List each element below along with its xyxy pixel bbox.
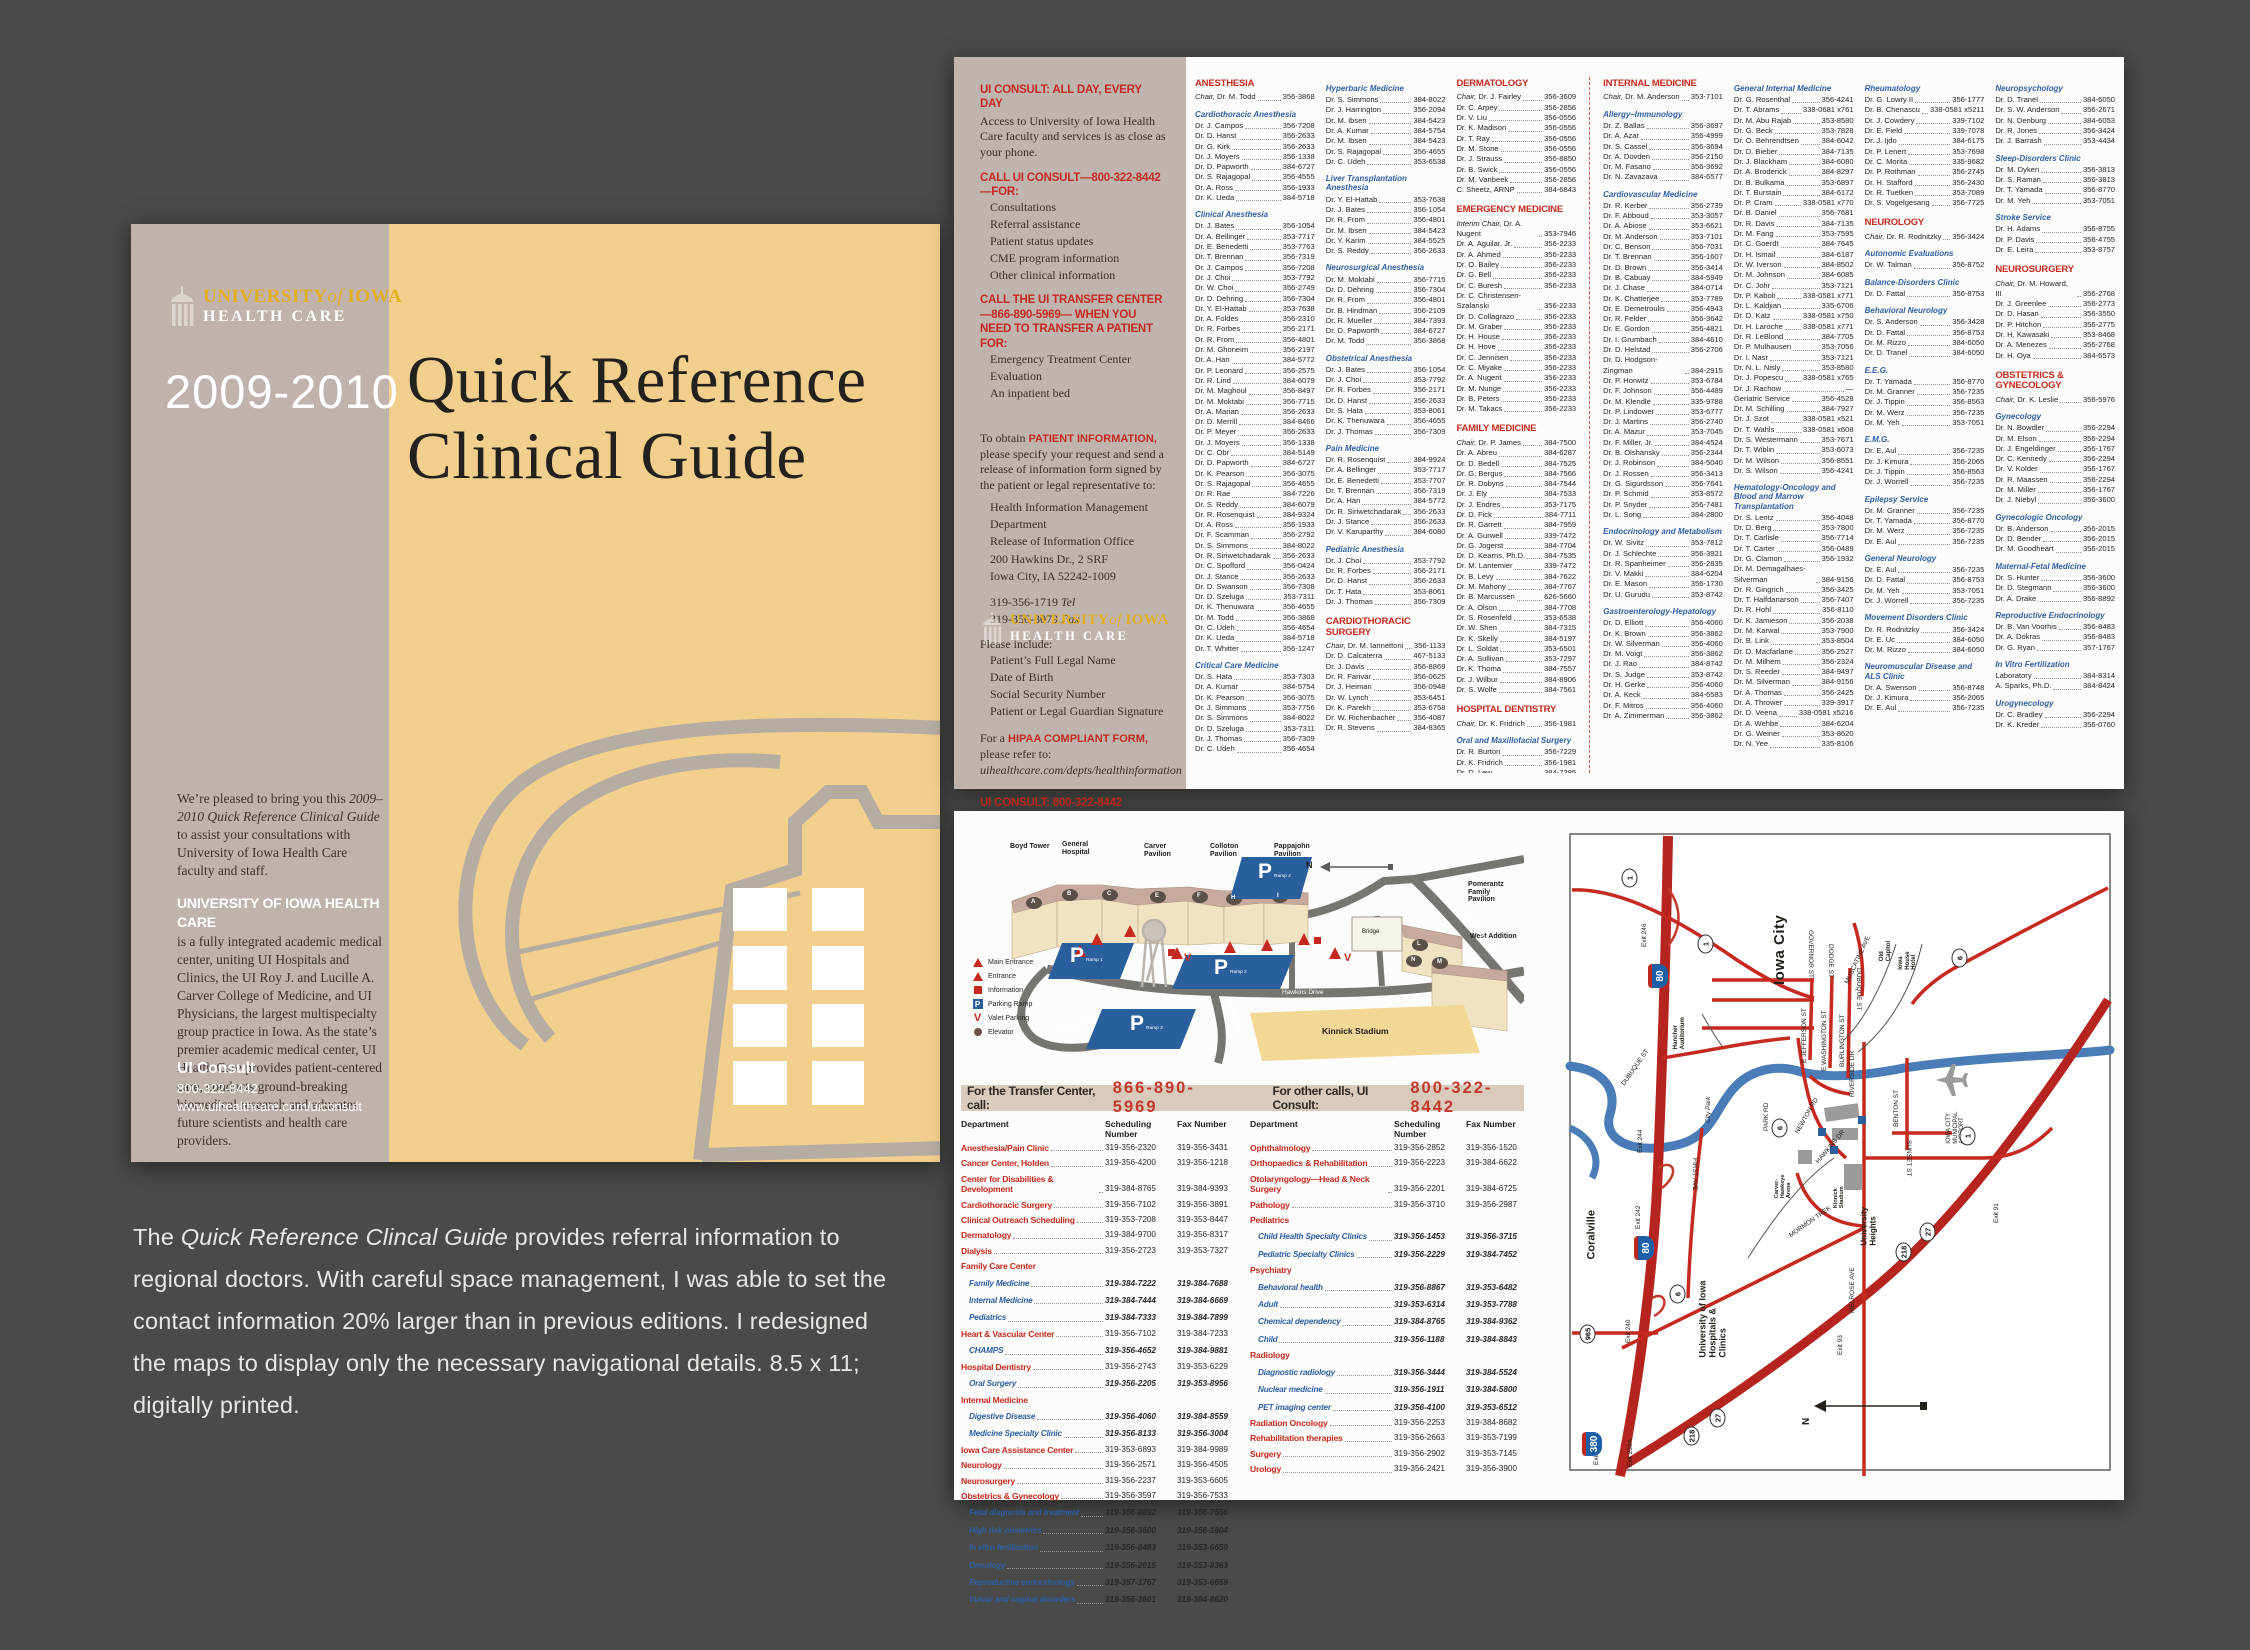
phone-table-row: Fetal diagnosis and treatment319-356-889… — [961, 1508, 1235, 1518]
directory-entry: Dr. R. Garrett384-7959 — [1456, 520, 1576, 530]
directory-entry: Dr. M. Ibsen384-5423 — [1326, 116, 1446, 126]
directory-entry: Dr. K. Brown356-3862 — [1603, 629, 1723, 639]
poi-label: Kinnick Stadium — [1833, 1182, 1845, 1208]
department-heading: ANESTHESIA — [1195, 79, 1315, 89]
directory-entry: Dr. R. Rosenquist384-9324 — [1195, 510, 1315, 520]
directory-entry: Dr. K. Thenuwara356-4655 — [1195, 602, 1315, 612]
directory-entry: Dr. M. Fang353-7595 — [1734, 229, 1854, 239]
route-marker: 6 — [1772, 1119, 1788, 1138]
directory-entry: Dr. A. Abreu384-6287 — [1456, 448, 1576, 458]
directory-entry: Dr. S. Simmons384-8022 — [1195, 713, 1315, 723]
directory-entry: Dr. M. Silverman384-9156 — [1734, 677, 1854, 687]
chair-entry: Chair, Dr. M. Todd356-3868 — [1195, 92, 1315, 102]
exit-label: Exit 91 — [1993, 1203, 2000, 1223]
directory-entry: Dr. F. Scamman356-2792 — [1195, 530, 1315, 540]
directory-entry: Dr. T. Brennan356-7319 — [1326, 486, 1446, 496]
phone-illustration — [400, 700, 940, 1162]
sidebar-address: Health Information Management Department… — [980, 499, 1166, 584]
subspecialty-heading: Hyperbaric Medicine — [1326, 84, 1446, 93]
campus-map: V V Boyd Tower General Hospital Carver P… — [962, 821, 1524, 1073]
directory-entry: Dr. C. Bradley356-2294 — [1995, 710, 2115, 720]
directory-entry: Dr. S. Simmons384-8022 — [1326, 95, 1446, 105]
directory-entry: Dr. D. Fattal356-8753 — [1865, 328, 1985, 338]
sidebar-list-1: Consultations Referral assistance Patien… — [980, 199, 1166, 284]
phone-table-row: Urology319-356-2421319-356-3900 — [1250, 1464, 1524, 1474]
directory-entry: Dr. B. Link353-8504 — [1734, 636, 1854, 646]
directory-entry: Dr. M. Todd356-3868 — [1195, 613, 1315, 623]
uihc-logo: Universityof Iowa Health Care — [980, 612, 1169, 651]
directory-entry: Dr. R. From356-4801 — [1326, 295, 1446, 305]
subspecialty-heading: Stroke Service — [1995, 213, 2115, 222]
phone-table-row: Radiation Oncology319-356-2253319-384-86… — [1250, 1418, 1524, 1428]
directory-entry: Dr. A. Mazur353-7045 — [1603, 427, 1723, 437]
directory-entry: Dr. A. Dovden356-2150 — [1603, 152, 1723, 162]
directory-entry: Dr. T. Brennan356-7319 — [1195, 252, 1315, 262]
directory-entry: Dr. M. Karwal353-7900 — [1734, 626, 1854, 636]
street-label: RIVERSIDE DR — [1849, 1051, 1856, 1097]
directory-entry: Dr. H. Hove356-2233 — [1456, 342, 1576, 352]
directory-entry: Dr. M. Goodheart356-2015 — [1995, 544, 2115, 554]
exit-label: Exit 239A — [1627, 1439, 1634, 1467]
directory-entry: Dr. A. Kumar384-5754 — [1195, 682, 1315, 692]
svg-text:V: V — [1344, 952, 1352, 964]
directory-entry: Dr. T. Carlisle356-7714 — [1734, 533, 1854, 543]
directory-entry: Dr. D. Bieber384-7135 — [1734, 147, 1854, 157]
directory-entry: Dr. T. Brennan356-1607 — [1603, 252, 1723, 262]
directory-entry: Dr. J. Chase384-0714 — [1603, 283, 1723, 293]
directory-entry: Dr. J. Bates356-1054 — [1326, 205, 1446, 215]
directory-entry: Dr. P. Schmid353-8572 — [1603, 489, 1723, 499]
directory-entry: Dr. M. Ghoneim356-2197 — [1195, 345, 1315, 355]
phone-table-row: Internal Medicine — [961, 1395, 1235, 1405]
street-label: BENTON ST — [1893, 1090, 1900, 1127]
directory-entry: Dr. M. Dyken356-3813 — [1995, 165, 2115, 175]
phone-table-row: Child Health Specialty Clinics319-356-14… — [1250, 1232, 1524, 1242]
directory-entry: Dr. R. Rosenquist384-9924 — [1326, 455, 1446, 465]
route-marker: 6 — [1670, 1285, 1686, 1304]
directory-entry: Dr. D. Swanson356-7308 — [1195, 582, 1315, 592]
directory-entry: Dr. J. Stance356-2633 — [1326, 517, 1446, 527]
route-marker: 6 — [1952, 949, 1968, 968]
directory-entry: Dr. P. Snyder356-7481 — [1603, 500, 1723, 510]
directory-entry: Dr. T. Burstain384-6172 — [1734, 188, 1854, 198]
directory-entry: Dr. D. Tranel384-6050 — [1995, 95, 2115, 105]
directory-entry: Dr. T. Yamada356-8770 — [1995, 185, 2115, 195]
phone-table-row: Psychiatry — [1250, 1265, 1524, 1275]
street-label: SUNSET ST — [1905, 1140, 1912, 1176]
directory-entry: Dr. V. Makki384-6204 — [1603, 569, 1723, 579]
directory-entry: Dr. C. Jennisen356-2233 — [1456, 353, 1576, 363]
building-letter: N — [1411, 957, 1415, 964]
street-label: BURLINGTON ST — [1839, 1014, 1846, 1067]
directory-entry: Dr. Y. El-Hattab353-7638 — [1326, 195, 1446, 205]
directory-entry: Dr. D. Brown356-3414 — [1603, 263, 1723, 273]
directory-entry: Dr. R. Felder356-3642 — [1603, 314, 1723, 324]
directory-entry: Dr. J. Barrash353-4434 — [1995, 136, 2115, 146]
directory-entry: Dr. A. Azar356-4999 — [1603, 131, 1723, 141]
directory-entry: Dr. N. L. Nisly353-8580 — [1734, 363, 1854, 373]
directory-entry: Dr. B. Marcussen626-5660 — [1456, 592, 1576, 602]
phone-table-row: Internal Medicine319-384-7444319-384-666… — [961, 1296, 1235, 1306]
subspecialty-heading: Balance-Disorders Clinic — [1865, 278, 1985, 287]
subspecialty-heading: Maternal-Fetal Medicine — [1995, 562, 2115, 571]
directory-entry: Dr. J. Stance356-2633 — [1195, 572, 1315, 582]
phone-table-row: Clinical Outreach Scheduling319-353-7208… — [961, 1215, 1235, 1225]
directory-entry: Dr. K. Ueda384-5718 — [1195, 633, 1315, 643]
directory-entry: Dr. D. Szeluga353-7311 — [1195, 592, 1315, 602]
directory-entry: Dr. J. Choi353-7792 — [1195, 273, 1315, 283]
street-label: E JEFFERSON ST — [1801, 1008, 1808, 1063]
regional-road-map: Iowa City Coralville University Heights … — [1562, 828, 2122, 1483]
directory-entry: Dr. T. Yamada356-8770 — [1865, 377, 1985, 387]
exit-label: Exit 246 — [1641, 924, 1648, 948]
directory-entry: Dr. M. Takacs356-2233 — [1456, 404, 1576, 414]
directory-entry: Dr. R. Siriwetchadarak356-2633 — [1195, 551, 1315, 561]
directory-entry: Dr. J. Strauss356-8850 — [1456, 154, 1576, 164]
directory-entry: Dr. I. Nasr353-7121 — [1734, 353, 1854, 363]
building-label: General Hospital — [1062, 841, 1102, 856]
directory-entry: Dr. T. Wiblin353-6073 — [1734, 445, 1854, 455]
directory-entry: Dr. F. Miller, Jr.384-4524 — [1603, 438, 1723, 448]
department-table-left: DepartmentScheduling NumberFax NumberAne… — [961, 1119, 1235, 1608]
chair-entry: Chair, Dr. R. Rodnitzky356-3424 — [1865, 232, 1985, 242]
directory-entry: Dr. C. Udeh356-4654 — [1195, 744, 1315, 754]
phone-table-row: Cardiothoracic Surgery319-356-7102319-35… — [961, 1200, 1235, 1210]
directory-entry: Dr. M. Schilling384-7927 — [1734, 404, 1854, 414]
directory-entry: Dr. M. Vanbeek356-2856 — [1456, 175, 1576, 185]
department-heading: NEUROSURGERY — [1995, 265, 2115, 275]
subspecialty-heading: Pediatric Anesthesia — [1326, 545, 1446, 554]
directory-entry: Dr. J. Moyers356-1338 — [1195, 152, 1315, 162]
directory-entry: Dr. C. Morita335-9682 — [1865, 157, 1985, 167]
directory-entry: Dr. R. Rae384-7226 — [1195, 489, 1315, 499]
directory-entry: Dr. N. Yee335-8106 — [1734, 739, 1854, 749]
directory-entry: Dr. J. Engeldinger356-1767 — [1995, 444, 2115, 454]
department-heading: INTERNAL MEDICINE — [1603, 79, 1723, 89]
directory-entry: Dr. R. Davis384-7135 — [1734, 219, 1854, 229]
phone-table-row: Pathology319-356-3710319-356-2987 — [1250, 1200, 1524, 1210]
subspecialty-heading: Gynecologic Oncology — [1995, 513, 2115, 522]
route-marker: 1 — [1622, 869, 1638, 888]
directory-entry: Dr. A. Broderick384-8297 — [1734, 167, 1854, 177]
directory-entry: Dr. E. Aul356-7235 — [1865, 537, 1985, 547]
directory-entry: Dr. G. Beck353-7828 — [1734, 126, 1854, 136]
directory-entry: Dr. W. Silverman356-4060 — [1603, 639, 1723, 649]
directory-entry: Dr. J. Bates356-1054 — [1326, 365, 1446, 375]
directory-entry: Dr. J. Greenlee356-2773 — [1995, 299, 2115, 309]
directory-entry: Dr. O. Behrendtsen384-6042 — [1734, 136, 1854, 146]
directory-entry: Dr. W. Shen384-7315 — [1456, 623, 1576, 633]
directory-entry: Dr. T. Wahls338-0581 x608 — [1734, 425, 1854, 435]
phone-band: For the Transfer Center, call: 866-890-5… — [961, 1085, 1524, 1111]
directory-column: General Internal MedicineDr. G. Rosentha… — [1734, 77, 1854, 773]
parking-ramp-1: PRamp 1 — [1070, 947, 1084, 967]
directory-entry: Dr. D. Bender356-2015 — [1995, 534, 2115, 544]
interstate-80-shield: 80 — [1648, 964, 1668, 988]
directory-entry: Dr. J. Rao384-8742 — [1603, 659, 1723, 669]
subspecialty-heading: Gastroenterology-Hepatology — [1603, 607, 1723, 616]
north-label: N — [1801, 1418, 1812, 1425]
phone-table-row: Diagnostic radiology319-356-3444319-384-… — [1250, 1368, 1524, 1378]
directory-entry: Dr. A. Swenson356-8748 — [1865, 683, 1985, 693]
directory-column: RheumatologyDr. G. Lowry II356-1777Dr. B… — [1865, 77, 1985, 773]
directory-entry: Dr. M. Graber356-2233 — [1456, 322, 1576, 332]
directory-entry: Dr. H. Gerke356-4060 — [1603, 680, 1723, 690]
directory-entry: Dr. E. Field339-7078 — [1865, 126, 1985, 136]
directory-entry: Dr. P. Horwitz353-6784 — [1603, 376, 1723, 386]
directory-entry: Dr. E. Benedetti353-7763 — [1195, 242, 1315, 252]
directory-entry: Dr. M. Miller356-1767 — [1995, 485, 2115, 495]
directory-entry: Dr. A. Ahmed356-2233 — [1456, 250, 1576, 260]
subspecialty-heading: Reproductive Endocrinology — [1995, 611, 2115, 620]
directory-entry: Dr. M. Werz356-7235 — [1865, 408, 1985, 418]
phone-table-row: Iowa Care Assistance Center319-353-68933… — [961, 1445, 1235, 1455]
directory-entry: Dr. M. Maghoul356-8497 — [1195, 386, 1315, 396]
building-label: Pomerantz Family Pavilion — [1468, 881, 1516, 904]
directory-entry: Dr. A. Thomas356-2425 — [1734, 688, 1854, 698]
phone-table-row: Surgery319-356-2902319-353-7145 — [1250, 1449, 1524, 1459]
city-label: Coralville — [1586, 1206, 1598, 1260]
directory-entry: Dr. K. Madison356-0556 — [1456, 123, 1576, 133]
directory-entry: Dr. P. Rothman356-2745 — [1865, 167, 1985, 177]
directory-entry: Dr. J. Heiman356-0948 — [1326, 682, 1446, 692]
subspecialty-heading: In Vitro Fertilization — [1995, 660, 2115, 669]
uihc-logo: Universityof Iowa Health Care — [167, 286, 402, 333]
directory-spread: UI CONSULT: ALL DAY, EVERY DAY Access to… — [954, 57, 2124, 789]
directory-entry: Dr. G. Jogerst384-7704 — [1456, 541, 1576, 551]
directory-entry: Dr. R. Forbes356-2171 — [1195, 324, 1315, 334]
phone-table-row: Adult319-353-6314319-353-7788 — [1250, 1300, 1524, 1310]
directory-entry: Dr. S. Hata353-7303 — [1195, 672, 1315, 682]
directory-entry: Dr. C. Obr384-5149 — [1195, 448, 1315, 458]
directory-entry: Dr. M. Yeh353-7051 — [1865, 586, 1985, 596]
directory-entry: Dr. D. Dehring356-7304 — [1195, 294, 1315, 304]
directory-entry: Dr. W. Sivitz353-7812 — [1603, 538, 1723, 548]
subspecialty-heading: Epilepsy Service — [1865, 495, 1985, 504]
directory-entry: Dr. S. Hata353-8061 — [1326, 406, 1446, 416]
directory-entry: Dr. C. Christensen-Szalanski356-2233 — [1456, 291, 1576, 312]
directory-entry: Dr. J. Choi353-7792 — [1326, 556, 1446, 566]
directory-entry: Dr. J. Cowdery339-7102 — [1865, 116, 1985, 126]
phone-table-row: Medicine Specialty Clinic319-356-8133319… — [961, 1429, 1235, 1439]
elevator-icon — [974, 1028, 982, 1036]
directory-entry: Dr. L. Song384-2800 — [1603, 510, 1723, 520]
directory-entry: Dr. T. Carter356-0489 — [1734, 544, 1854, 554]
directory-entry: Dr. J. Thomas356-7309 — [1326, 427, 1446, 437]
directory-columns: ANESTHESIAChair, Dr. M. Todd356-3868Card… — [1195, 77, 2115, 773]
directory-column: ANESTHESIAChair, Dr. M. Todd356-3868Card… — [1195, 77, 1315, 773]
directory-entry: Dr. G. Ryan357-1767 — [1995, 643, 2115, 653]
directory-entry: Dr. M. Johnson384-6085 — [1734, 270, 1854, 280]
subspecialty-heading: Oral and Maxillofacial Surgery — [1456, 736, 1576, 745]
directory-entry: Dr. D. Fattal356-8753 — [1865, 575, 1985, 585]
directory-entry: Dr. M. Stone356-0556 — [1456, 144, 1576, 154]
directory-entry: Dr. B. Olshansky356-2344 — [1603, 448, 1723, 458]
directory-entry: Dr. D. Berg353-7800 — [1734, 523, 1854, 533]
exit-label: Exit 240 — [1625, 1320, 1632, 1344]
directory-entry: Dr. T. Halfdanarson356-7407 — [1734, 595, 1854, 605]
directory-entry: Dr. C. Udeh353-6538 — [1326, 157, 1446, 167]
directory-entry: Dr. L. Kaldjian335-6706 — [1734, 301, 1854, 311]
directory-entry: Dr. S. Rajagopal356-4655 — [1326, 147, 1446, 157]
directory-entry: Dr. R. Kerber356-2739 — [1603, 201, 1723, 211]
directory-entry: Dr. J. Thomas356-7309 — [1326, 597, 1446, 607]
subspecialty-heading: Sleep-Disorders Clinic — [1995, 154, 2115, 163]
directory-entry: Dr. E. Aul356-7235 — [1865, 565, 1985, 575]
subspecialty-heading: Clinical Anesthesia — [1195, 210, 1315, 219]
stadium-label: Kinnick Stadium — [1322, 1027, 1389, 1036]
directory-entry: Dr. B. Cabuay384-5949 — [1603, 273, 1723, 283]
directory-entry: Dr. E. Aul356-7235 — [1865, 446, 1985, 456]
directory-entry: Dr. A. Keck384-6583 — [1603, 690, 1723, 700]
building-letter: F — [1197, 893, 1201, 900]
directory-entry: Dr. E. Aul356-7235 — [1865, 703, 1985, 713]
directory-entry: Dr. S. Raman356-3813 — [1995, 175, 2115, 185]
directory-entry: Dr. D. Hanst356-2633 — [1326, 396, 1446, 406]
directory-entry: Dr. A. Foldes356-2310 — [1195, 314, 1315, 324]
directory-entry: Dr. S. Simmons384-8022 — [1195, 541, 1315, 551]
directory-entry: Dr. M. Yeh353-7051 — [1995, 196, 2115, 206]
directory-entry: Dr. C. Kennedy356-2294 — [1995, 454, 2115, 464]
portfolio-caption: The Quick Reference Clincal Guide provid… — [133, 1216, 895, 1426]
maps-spread: V V Boyd Tower General Hospital Carver P… — [954, 811, 2124, 1500]
directory-entry: Dr. W. Choi356-2749 — [1195, 283, 1315, 293]
directory-entry: Dr. C. Arpey356-2856 — [1456, 103, 1576, 113]
directory-entry: Dr. M. Anderson353-7101 — [1603, 232, 1723, 242]
directory-entry: Dr. J. Bates356-1054 — [1195, 221, 1315, 231]
interstate-380-shield: 380 — [1582, 1432, 1602, 1456]
directory-entry: Dr. M. Rizzo384-6050 — [1865, 338, 1985, 348]
chair-entry: Interim Chair, Dr. A. Nugent353-7946 — [1456, 219, 1576, 240]
phone-table-row: Neurosurgery319-356-2237319-353-6605 — [961, 1476, 1235, 1486]
directory-entry: Dr. D. Fattal356-8753 — [1865, 289, 1985, 299]
directory-entry: Dr. R. Forbes356-2171 — [1326, 385, 1446, 395]
directory-entry: Dr. M. Ibsen384-5423 — [1326, 226, 1446, 236]
street-label: FIRST AVE — [1691, 1158, 1698, 1191]
department-heading: EMERGENCY MEDICINE — [1456, 205, 1576, 215]
directory-entry: Dr. V. Liu356-0556 — [1456, 113, 1576, 123]
directory-entry: Dr. J. Blackham384-6080 — [1734, 157, 1854, 167]
page-fold-divider — [1589, 77, 1590, 773]
directory-entry: Dr. D. Elliott356-4060 — [1603, 618, 1723, 628]
directory-entry: Dr. R. Rodnitzky356-3424 — [1865, 625, 1985, 635]
street-label: DUBUQUE ST — [1855, 968, 1862, 1011]
phone-table-row: Ophthalmology319-356-2852319-356-1520 — [1250, 1143, 1524, 1153]
phone-table-row: Chemical dependency319-384-8765319-384-9… — [1250, 1317, 1524, 1327]
directory-entry: Dr. N. Denburg384-6053 — [1995, 116, 2115, 126]
subspecialty-heading: Rheumatology — [1865, 84, 1985, 93]
directory-entry: Dr. P. Lenert353-7698 — [1865, 147, 1985, 157]
directory-entry: Dr. A. Bellinger353-7717 — [1195, 232, 1315, 242]
subspecialty-heading: Obstetrical Anesthesia — [1326, 354, 1446, 363]
directory-entry: Dr. J. Choi353-7792 — [1326, 375, 1446, 385]
building-label: Pappajohn Pavilion — [1274, 843, 1320, 858]
directory-entry: Dr. A. Ross356-1933 — [1195, 520, 1315, 530]
phone-table-row: Rehabilitation therapies319-356-2663319-… — [1250, 1433, 1524, 1443]
directory-entry: Dr. M. Klendle335-9788 — [1603, 397, 1723, 407]
directory-entry: Dr. A. Han384-5772 — [1195, 355, 1315, 365]
svg-text:V: V — [1184, 952, 1192, 964]
directory-entry: Dr. J. Rossen356-3413 — [1603, 469, 1723, 479]
directory-entry: Dr. G. Bell356-2233 — [1456, 270, 1576, 280]
subspecialty-heading: Neurosurgical Anesthesia — [1326, 263, 1446, 272]
directory-entry: Dr. G. Kirk356-2633 — [1195, 142, 1315, 152]
directory-entry: Dr. J. Tippin356-8563 — [1865, 467, 1985, 477]
directory-entry: Dr. R. Lind384-6079 — [1195, 376, 1315, 386]
directory-entry: Dr. J. Martins356-2740 — [1603, 417, 1723, 427]
chair-entry: Chair, Dr. K. Leslie356-5976 — [1995, 395, 2115, 405]
street-label: E WASHINGTON ST — [1821, 1010, 1828, 1071]
directory-sidebar: UI CONSULT: ALL DAY, EVERY DAY Access to… — [954, 57, 1186, 789]
directory-entry: Dr. M. Wilson356-8551 — [1734, 456, 1854, 466]
directory-entry: Dr. D. Papworth384-6727 — [1195, 458, 1315, 468]
directory-entry: Dr. D. Helstad356-2706 — [1603, 345, 1723, 355]
phone-table-row: Dialysis319-356-2723319-353-7327 — [961, 1246, 1235, 1256]
directory-entry: Dr. K. Thoma384-7557 — [1456, 664, 1576, 674]
park-label: City Park — [1705, 1097, 1712, 1123]
directory-entry: Dr. J. Simmons353-7756 — [1195, 703, 1315, 713]
transfer-center-number: 866-890-5969 — [1113, 1079, 1227, 1117]
directory-entry: Dr. J. Kimura356-2065 — [1865, 457, 1985, 467]
directory-entry: Dr. D. Papworth384-6727 — [1326, 326, 1446, 336]
phone-table-row: Behavioral health319-356-8867319-353-648… — [1250, 1283, 1524, 1293]
poi-label: Iowa House Hotel — [1898, 942, 1918, 970]
directory-entry: Dr. D. Hodgson-Zingman384-2915 — [1603, 355, 1723, 376]
subspecialty-heading: Cardiothoracic Anesthesia — [1195, 110, 1315, 119]
department-heading: OBSTETRICS & GYNECOLOGY — [1995, 371, 2115, 392]
subspecialty-heading: Behavioral Neurology — [1865, 306, 1985, 315]
directory-entry: Dr. M. Rizzo384-6050 — [1865, 645, 1985, 655]
directory-entry: Dr. K. Pearson356-3075 — [1195, 469, 1315, 479]
phone-table-row: Obstetrics & Gynecology319-356-3597319-3… — [961, 1491, 1235, 1501]
directory-entry: Dr. H. Oya384-6573 — [1995, 351, 2115, 361]
valet-parking-icon: V — [974, 1012, 981, 1024]
directory-entry: Dr. K. Fridrich356-1981 — [1456, 758, 1576, 768]
directory-entry: Dr. D. Merrill384-8466 — [1195, 417, 1315, 427]
directory-entry: Dr. D. Stegmann356-3600 — [1995, 583, 2115, 593]
phone-table-row: Family Medicine319-384-7222319-384-7688 — [961, 1279, 1235, 1289]
directory-entry: Dr. J. Worrell356-7235 — [1865, 596, 1985, 606]
directory-entry: Dr. B. Daniel356-7681 — [1734, 208, 1854, 218]
subspecialty-heading: Cardiovascular Medicine — [1603, 190, 1723, 199]
phone-table-row: CHAMPS319-356-4652319-384-9881 — [961, 1346, 1235, 1356]
department-heading: DERMATOLOGY — [1456, 79, 1576, 89]
directory-entry: Dr. M. Milhem356-2324 — [1734, 657, 1854, 667]
directory-entry: Dr. M. Demagalhaes-Silverman384-9156 — [1734, 564, 1854, 585]
directory-entry: Dr. R. Spanheimer356-2835 — [1603, 559, 1723, 569]
directory-entry: Dr. A. Marian356-2633 — [1195, 407, 1315, 417]
building-letter: M — [1437, 959, 1442, 966]
city-label: University Heights — [1860, 1182, 1878, 1246]
department-table-right: DepartmentScheduling NumberFax NumberOph… — [1250, 1119, 1524, 1475]
directory-entry: Dr. S. Reddy384-6079 — [1195, 500, 1315, 510]
directory-entry: Dr. A. Wehbe384-6204 — [1734, 719, 1854, 729]
directory-entry: C. Sheetz, ARNP384-6843 — [1456, 185, 1576, 195]
directory-entry: Dr. D. Macfarlane356-2527 — [1734, 647, 1854, 657]
directory-entry: Dr. E. Uc384-6050 — [1865, 635, 1985, 645]
directory-entry: Dr. T. Whitter356-1247 — [1195, 644, 1315, 654]
department-heading: NEUROLOGY — [1865, 218, 1985, 228]
directory-entry: Dr. S. Westermann353-7671 — [1734, 435, 1854, 445]
subspecialty-heading: General Neurology — [1865, 554, 1985, 563]
directory-entry: Dr. O. Bailey356-2233 — [1456, 260, 1576, 270]
chair-entry: Chair, Dr. M. Anderson353-7101 — [1603, 92, 1723, 102]
directory-entry: Dr. S. Vogelgesang356-7725 — [1865, 198, 1985, 208]
parking-ramp-2: PRamp 2 — [1214, 959, 1228, 979]
directory-entry: Dr. A. Sullivan353-7297 — [1456, 654, 1576, 664]
sidebar-heading: UI CONSULT: ALL DAY, EVERY DAY — [980, 83, 1166, 112]
directory-entry: Dr. M. Fasano356-3692 — [1603, 162, 1723, 172]
